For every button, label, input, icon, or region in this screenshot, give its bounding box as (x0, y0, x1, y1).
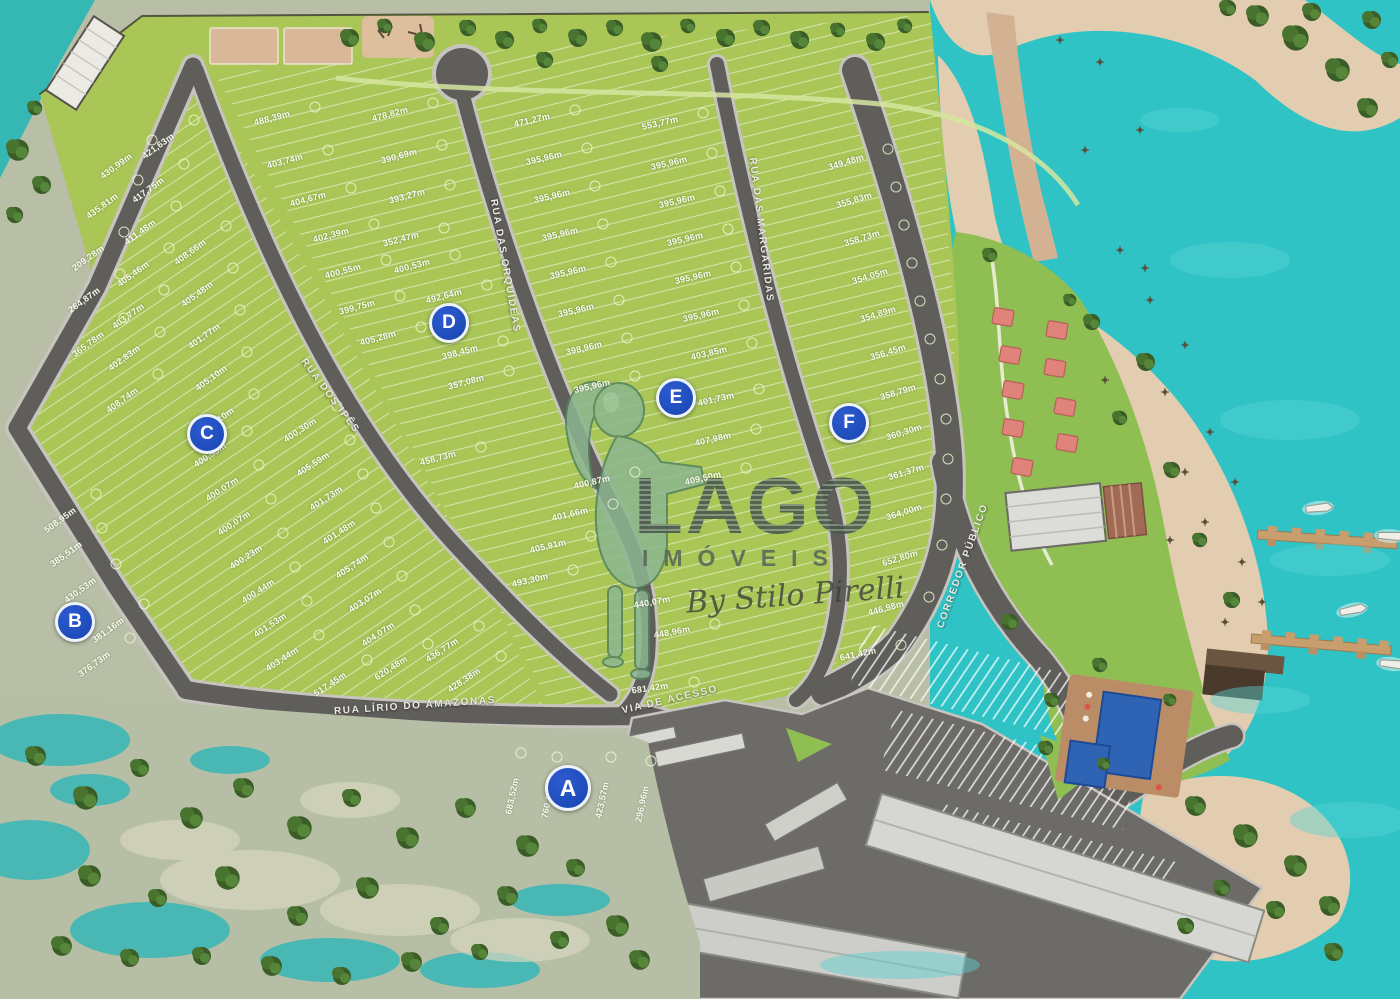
lot-measurement: 400,30m (282, 416, 318, 445)
lot-measurement: 405,10m (193, 363, 229, 393)
lot-number-badge (158, 285, 169, 296)
lot-measurement: 430,99m (98, 151, 134, 181)
site-plan-map: 421,63m430,99m417,75m435,81m411,48m209,2… (0, 0, 1400, 999)
lot-measurement: 402,39m (312, 225, 350, 244)
lot-measurement: 430,53m (62, 575, 98, 605)
lot-number-badge (688, 676, 699, 687)
lot-number-badge (309, 101, 320, 112)
lot-number-badge (581, 143, 592, 154)
lot-number-badge (444, 179, 455, 190)
lot-measurement: 361,37m (887, 462, 925, 482)
lot-number-badge (227, 263, 238, 274)
street-name: RUA LÍRIO DO AMAZONAS (334, 695, 497, 717)
lot-number-badge (438, 222, 449, 233)
lot-number-badge (170, 201, 181, 212)
lot-number-badge (110, 559, 121, 570)
lot-measurement: 403,44m (264, 645, 300, 674)
lot-number-badge (361, 655, 372, 666)
lot-number-badge (301, 596, 312, 607)
lot-number-badge (621, 333, 632, 344)
labels-overlay: 421,63m430,99m417,75m435,81m411,48m209,2… (0, 0, 1400, 999)
lot-number-badge (220, 221, 231, 232)
lot-measurement: 408,66m (172, 237, 208, 267)
lot-measurement: 385,51m (48, 539, 84, 569)
lot-measurement: 390,69m (380, 146, 418, 165)
lot-measurement: 395,96m (549, 263, 587, 281)
lot-measurement: 400,44m (240, 577, 276, 606)
lot-measurement: 349,48m (827, 152, 865, 172)
lot-number-badge (629, 371, 640, 382)
lot-number-badge (896, 639, 907, 650)
lot-number-badge (322, 144, 333, 155)
lot-measurement: 400,23m (228, 543, 264, 572)
lot-measurement: 652,80m (881, 548, 919, 568)
lot-number-badge (937, 540, 948, 551)
lot-number-badge (497, 335, 508, 346)
lot-measurement: 448,96m (653, 624, 691, 640)
lot-measurement: 405,91m (529, 537, 567, 555)
lot-number-badge (569, 105, 580, 116)
lot-measurement: 400,53m (393, 256, 431, 275)
lot-measurement: 402,83m (106, 343, 142, 373)
lot-measurement: 401,53m (252, 611, 288, 640)
lot-number-badge (132, 175, 143, 186)
lot-number-badge (730, 262, 741, 273)
lot-measurement: 488,39m (253, 108, 291, 127)
lot-measurement: 398,96m (565, 339, 603, 357)
lot-number-badge (606, 751, 617, 762)
lot-measurement: 681,42m (631, 680, 669, 695)
lot-number-badge (503, 365, 514, 376)
lot-number-badge (253, 460, 264, 471)
lot-measurement: 264,87m (66, 285, 102, 315)
lot-measurement: 405,74m (334, 552, 370, 581)
lot-measurement: 393,27m (388, 186, 426, 205)
lot-number-badge (585, 531, 596, 542)
lot-number-badge (475, 441, 486, 452)
lot-measurement: 471,27m (513, 111, 551, 129)
lot-number-badge (750, 424, 761, 435)
lot-number-badge (613, 295, 624, 306)
lot-number-badge (178, 159, 189, 170)
lot-number-badge (345, 182, 356, 193)
lot-measurement: 517,45m (312, 670, 348, 699)
lot-measurement: 401,66m (551, 505, 589, 523)
lot-measurement: 400,07m (216, 509, 252, 538)
lot-measurement: 641,42m (839, 645, 877, 662)
lot-number-badge (589, 181, 600, 192)
lot-number-badge (597, 219, 608, 230)
lot-measurement: 395,96m (674, 268, 712, 286)
lot-measurement: 365,78m (70, 329, 106, 359)
lot-measurement: 358,73m (843, 228, 881, 248)
lot-number-badge (313, 630, 324, 641)
section-badge-c: C (187, 414, 227, 454)
lot-measurement: 354,89m (859, 304, 897, 324)
lot-measurement: 405,48m (179, 279, 215, 309)
lot-measurement: 401,48m (321, 518, 357, 547)
lot-number-badge (289, 562, 300, 573)
lot-number-badge (265, 494, 276, 505)
lot-number-badge (409, 605, 420, 616)
lot-measurement: 209,28m (70, 243, 106, 273)
lot-number-badge (383, 537, 394, 548)
street-name: RUA DAS MARGARIDAS (747, 157, 776, 303)
lot-measurement: 407,98m (694, 430, 732, 448)
lot-number-badge (368, 218, 379, 229)
lot-number-badge (124, 633, 135, 644)
lot-measurement: 296,96m (633, 785, 650, 823)
lot-measurement: 400,87m (573, 473, 611, 491)
lot-number-badge (277, 528, 288, 539)
lot-number-badge (163, 243, 174, 254)
lot-number-badge (552, 751, 563, 762)
lot-measurement: 403,07m (347, 586, 383, 615)
lot-measurement: 395,96m (557, 301, 595, 319)
lot-number-badge (746, 338, 757, 349)
lot-measurement: 403,85m (690, 344, 728, 362)
lot-measurement: 376,73m (76, 649, 112, 679)
lot-number-badge (241, 426, 252, 437)
lot-number-badge (96, 523, 107, 534)
lot-measurement: 400,07m (204, 475, 240, 504)
lot-measurement: 683,52m (503, 777, 520, 815)
lot-number-badge (396, 571, 407, 582)
lot-measurement: 405,59m (295, 450, 331, 479)
section-badge-b: B (55, 602, 95, 642)
lot-number-badge (915, 296, 926, 307)
lot-number-badge (738, 300, 749, 311)
lot-measurement: 395,96m (650, 154, 688, 172)
lot-number-badge (481, 279, 492, 290)
lot-number-badge (234, 305, 245, 316)
lot-measurement: 435,81m (84, 191, 120, 221)
lot-measurement: 401,73m (308, 484, 344, 513)
lot-number-badge (925, 334, 936, 345)
lot-number-badge (449, 249, 460, 260)
street-name: CORREDOR PÚBLICO (935, 502, 990, 630)
lot-measurement: 421,63m (140, 131, 176, 161)
lot-measurement: 399,75m (338, 297, 376, 316)
lot-measurement: 401,73m (697, 390, 735, 408)
lot-number-badge (248, 389, 259, 400)
lot-measurement: 478,82m (371, 104, 409, 123)
lot-measurement: 352,47m (382, 229, 420, 248)
lot-number-badge (722, 224, 733, 235)
lot-number-badge (941, 414, 952, 425)
lot-measurement: 404,07m (360, 620, 396, 649)
lot-number-badge (114, 269, 125, 280)
section-badge-e: E (656, 378, 696, 418)
lot-number-badge (138, 599, 149, 610)
lot-measurement: 423,57m (593, 781, 610, 819)
lot-measurement: 553,77m (641, 114, 679, 132)
lot-number-badge (516, 747, 527, 758)
lot-number-badge (154, 327, 165, 338)
section-badge-a: A (545, 765, 591, 811)
lot-number-badge (118, 313, 129, 324)
lot-measurement: 401,77m (186, 321, 222, 351)
lot-measurement: 508,95m (42, 505, 78, 535)
lot-measurement: 620,48m (373, 654, 409, 683)
lot-number-badge (943, 454, 954, 465)
section-badge-f: F (829, 403, 869, 443)
lot-number-badge (605, 257, 616, 268)
lot-measurement: 403,74m (266, 151, 304, 170)
lot-number-badge (935, 374, 946, 385)
lot-number-badge (923, 591, 934, 602)
lot-number-badge (899, 220, 910, 231)
lot-measurement: 395,96m (658, 192, 696, 210)
lot-number-badge (907, 258, 918, 269)
lot-measurement: 395,96m (666, 230, 704, 248)
lot-number-badge (436, 139, 447, 150)
lot-number-badge (394, 290, 405, 301)
lot-measurement: 395,96m (682, 306, 720, 324)
lot-number-badge (415, 321, 426, 332)
lot-number-badge (495, 651, 506, 662)
lot-number-badge (370, 503, 381, 514)
lot-measurement: 357,08m (447, 372, 485, 391)
lot-measurement: 355,83m (835, 190, 873, 210)
lot-number-badge (941, 494, 952, 505)
lot-measurement: 428,38m (446, 666, 482, 695)
lot-number-badge (753, 384, 764, 395)
lot-measurement: 408,74m (104, 385, 140, 415)
section-badge-d: D (429, 303, 469, 343)
lot-number-badge (188, 115, 199, 126)
lot-number-badge (607, 499, 618, 510)
lot-number-badge (706, 148, 717, 159)
lot-number-badge (883, 144, 894, 155)
lot-measurement: 400,55m (324, 261, 362, 280)
lot-number-badge (90, 489, 101, 500)
lot-number-badge (146, 135, 157, 146)
lot-measurement: 395,96m (541, 225, 579, 243)
lot-number-badge (567, 565, 578, 576)
lot-measurement: 354,05m (851, 266, 889, 286)
lot-measurement: 381,16m (90, 615, 126, 645)
lot-number-badge (380, 254, 391, 265)
lot-number-badge (357, 469, 368, 480)
street-name: RUA DAS ORQUÍDEAS (488, 198, 522, 334)
lot-number-badge (152, 369, 163, 380)
lot-measurement: 405,28m (359, 328, 397, 347)
lot-number-badge (646, 755, 657, 766)
lot-measurement: 458,73m (419, 448, 457, 467)
lot-number-badge (422, 639, 433, 650)
lot-number-badge (473, 621, 484, 632)
lot-measurement: 358,79m (879, 382, 917, 402)
lot-number-badge (710, 619, 721, 630)
lot-number-badge (344, 435, 355, 446)
lot-measurement: 360,30m (885, 422, 923, 442)
lot-measurement: 440,07m (633, 594, 671, 610)
watermark-brand: LAGO (634, 466, 877, 546)
lot-measurement: 364,00m (885, 502, 923, 522)
lot-measurement: 493,30m (511, 571, 549, 589)
lot-measurement: 398,45m (441, 342, 479, 361)
lot-measurement: 404,67m (289, 189, 327, 208)
lot-number-badge (118, 227, 129, 238)
watermark-subtitle: IMÓVEIS (642, 545, 843, 572)
lot-number-badge (891, 182, 902, 193)
lot-measurement: 395,96m (533, 187, 571, 205)
lot-measurement: 395,96m (573, 377, 611, 395)
lot-number-badge (697, 108, 708, 119)
lot-measurement: 395,96m (525, 149, 563, 167)
lot-number-badge (714, 186, 725, 197)
lot-number-badge (241, 347, 252, 358)
lot-measurement: 356,45m (869, 342, 907, 362)
lot-number-badge (427, 97, 438, 108)
